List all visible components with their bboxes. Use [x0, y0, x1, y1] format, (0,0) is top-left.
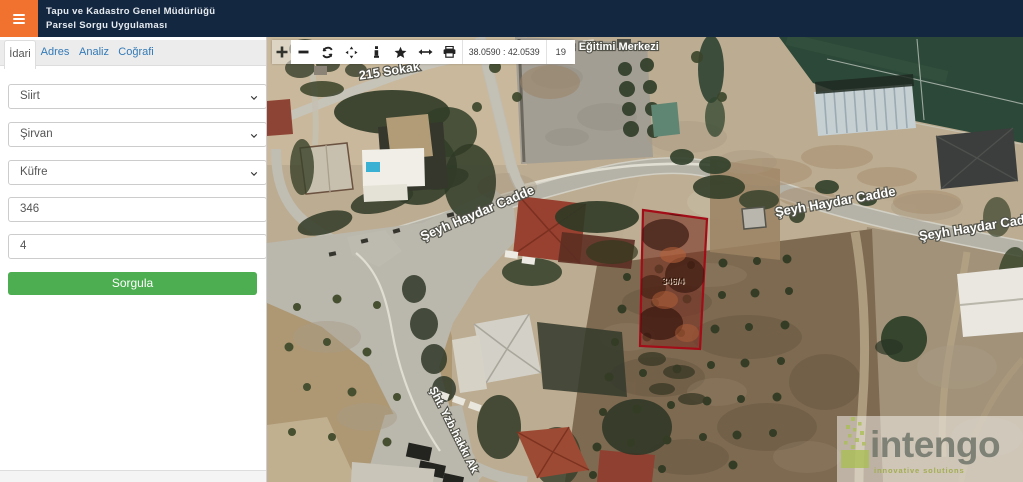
- svg-text:: Eğitimi Merkezi: : Eğitimi Merkezi: [572, 41, 659, 53]
- svg-text:346/4: 346/4: [662, 276, 685, 286]
